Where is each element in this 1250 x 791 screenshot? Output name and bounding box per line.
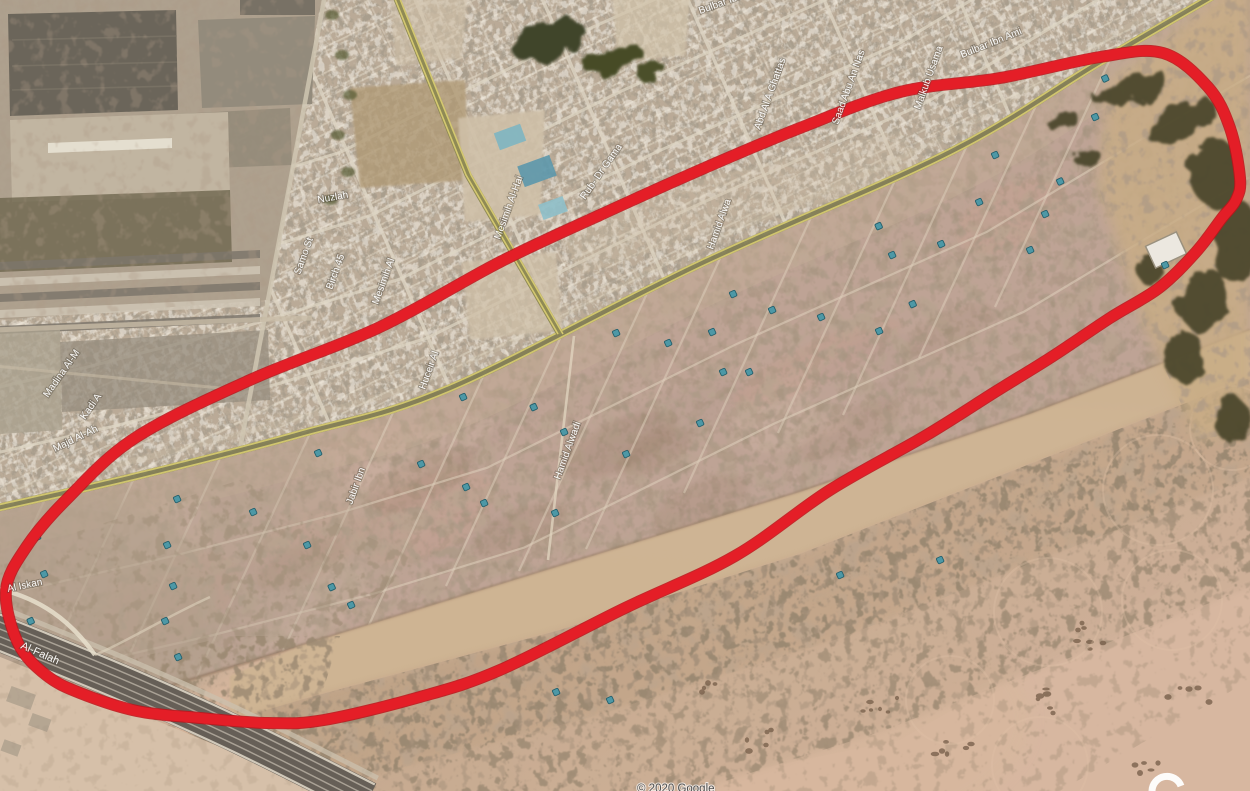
- svg-text:© 2020 Google: © 2020 Google: [637, 783, 715, 791]
